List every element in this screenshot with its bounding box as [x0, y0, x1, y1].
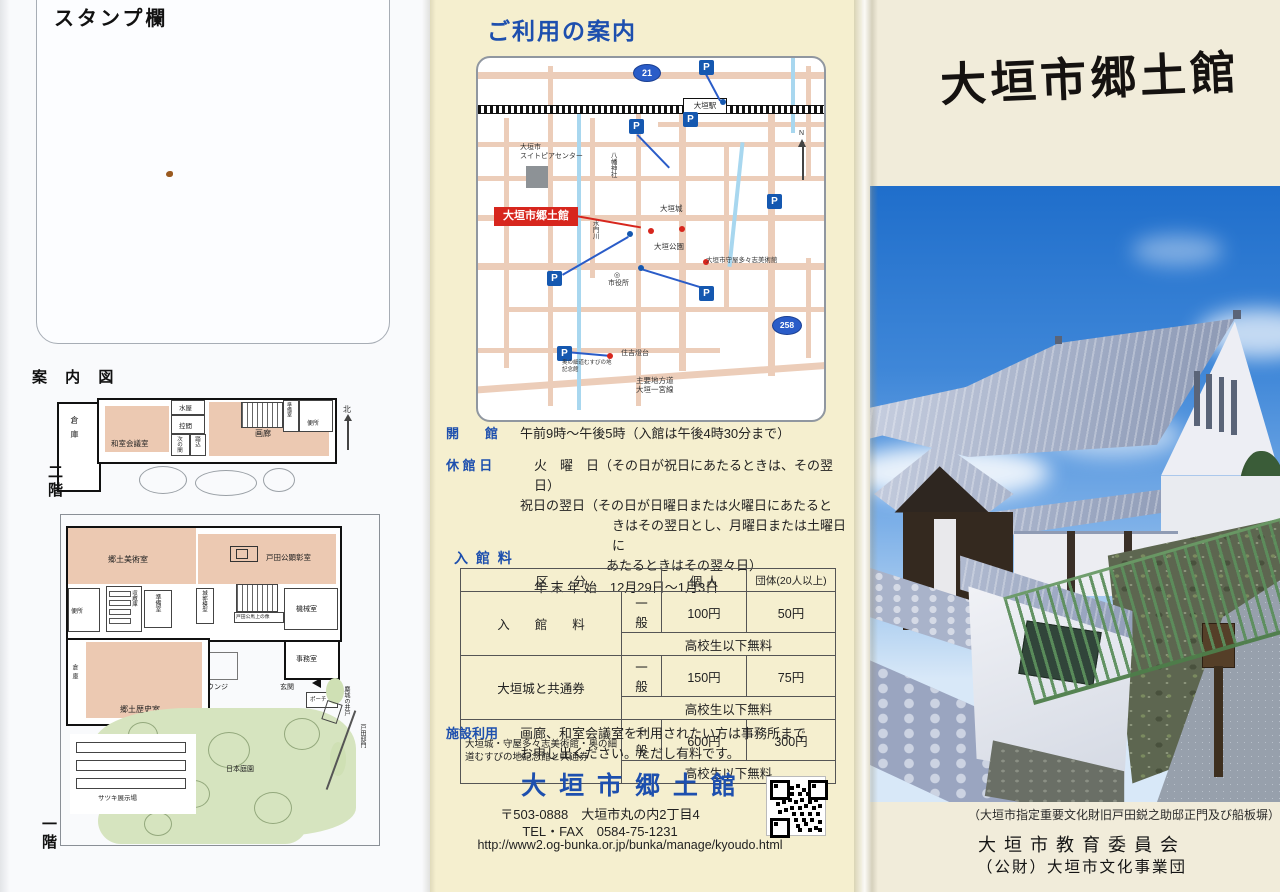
parking-pointer-line — [637, 134, 670, 168]
pref-road-label: 主要地方道 大垣一宮線 — [636, 376, 674, 395]
floorplan-1f: 郷土美術室 戸田公顕彰室 便所 収蔵庫 準備室 城郭模型 戸田公馬上の像 機械室… — [58, 512, 393, 852]
closed-line: きはその翌日とし、月曜日または土曜日に — [520, 516, 852, 556]
north-arrow-icon: N — [796, 130, 810, 182]
floor1-label: 一階 — [38, 816, 59, 852]
guide-map-title: 案 内 図 — [32, 366, 120, 387]
parking-icon: P — [699, 286, 714, 301]
fees-type: 一 般 — [622, 656, 662, 697]
parking-icon: P — [557, 346, 572, 361]
genkan-label: 玄関 — [280, 682, 294, 692]
suimon-label: 水門川 — [590, 220, 598, 240]
map-road — [636, 106, 641, 406]
room-tsuginoma-label: 次の間 — [175, 436, 183, 453]
qr-code — [766, 776, 826, 836]
room-fumikomi-label: 踏込 — [193, 436, 201, 447]
map-road — [548, 66, 553, 406]
okuno-label: 奥の細道むすびの地 記念館 — [562, 360, 612, 374]
map-dot-castle — [679, 226, 685, 232]
open-label: 開 館 — [446, 424, 520, 444]
route-21-badge: 21 — [633, 64, 661, 82]
fees-individual: 100円 — [662, 592, 747, 633]
map-dot — [638, 265, 644, 271]
room-benjo-2f-label: 便所 — [307, 418, 319, 427]
parking-pointer-line — [641, 268, 708, 290]
map-dot-lighthouse — [607, 353, 613, 359]
map-river — [791, 58, 795, 133]
garden-label: 日本庭園 — [226, 764, 254, 774]
panel-stamp-and-floorplans: スタンプ欄 案 内 図 倉庫 和室会議室 水屋 控間 次の間 踏込 画廊 準備室… — [0, 0, 430, 892]
museum-name: 大 垣 市 郷 土 館 — [500, 766, 760, 802]
bijo-well-label: 麋城の井戸 — [342, 686, 351, 716]
room-mizuya-label: 水屋 — [179, 402, 192, 412]
map-road — [679, 106, 686, 371]
shelf — [109, 591, 131, 597]
cloud — [1132, 235, 1222, 266]
castle-label: 大垣城 — [660, 204, 683, 213]
room-kikai-label: 機械室 — [296, 604, 317, 614]
room-gallery-label: 画廊 — [255, 428, 271, 439]
room-kyodo-bijutsu-label: 郷土美術室 — [108, 554, 148, 565]
closed-line: 祝日の翌日（その日が日曜日または火曜日にあたると — [520, 496, 852, 516]
section-title: ご利用の案内 — [487, 12, 637, 46]
garden-sketch-2f — [195, 470, 257, 496]
org-line2: （公財）大垣市文化事業団 — [882, 855, 1280, 877]
facility-line: お申し出ください。ただし有料です。 — [520, 744, 806, 764]
facility-line: 画廊、和室会議室を利用されたい方は事務所まで — [520, 724, 806, 744]
art-museum-label: 大垣市守屋多々志美術館 — [706, 257, 778, 265]
castle-model-label: 城郭模型 — [200, 590, 208, 612]
room-toda-kensho-label: 戸田公顕彰室 — [266, 552, 311, 563]
satsuki-bench — [76, 778, 186, 789]
stamp-box — [36, 0, 390, 344]
map-river — [727, 142, 744, 267]
panel-cover: 大垣市郷土館 — [862, 0, 1280, 892]
suitopia-line2: スイトピアセンター — [520, 153, 583, 162]
fees-col-individual: 個 人 — [662, 569, 747, 592]
garden-sketch-2f — [263, 468, 295, 492]
lighthouse-label: 住吉燈台 — [621, 350, 649, 359]
toda-gate-label: 戸田邸門 — [358, 724, 367, 748]
room-benjo-2f — [299, 400, 333, 432]
map-road — [724, 142, 729, 312]
room-junbi-2f-label: 準備室 — [286, 402, 293, 417]
map-road — [806, 258, 811, 358]
garden-tree — [208, 732, 250, 768]
park-label: 大垣公園 — [654, 242, 684, 251]
fees-col-group: 団体(20人以上) — [747, 569, 836, 592]
fees-type: 一 般 — [622, 592, 662, 633]
fees-row: 入 館 料 一 般 100円 50円 — [461, 592, 836, 633]
floor2-label: 二階 — [44, 464, 65, 500]
paper-speck — [166, 171, 173, 177]
porch-label: ポーチ — [310, 695, 327, 703]
closed-line: 火 曜 日（その日が祝日にあたるときは、その翌日） — [520, 456, 852, 496]
toda-statue-label: 戸田公馬上の像 — [236, 613, 270, 620]
room-junbi-1f-label: 準備室 — [153, 594, 162, 612]
map-dot-kyodokan — [648, 228, 654, 234]
access-map: 大垣駅 21 258 P P P P P P P 大垣市郷土館 大垣市 スイトピ… — [476, 56, 826, 422]
fees-col-category: 区 分 — [461, 569, 662, 592]
stairs-2f — [241, 402, 283, 428]
photo-gable-slit — [1206, 374, 1212, 429]
stairs-1f — [236, 584, 278, 612]
parking-icon: P — [683, 112, 698, 127]
suitopia-square — [526, 166, 548, 188]
pref-road-line1: 主要地方道 — [636, 376, 674, 385]
lounge-furniture — [206, 652, 238, 680]
photo-roof-finial — [1233, 310, 1241, 319]
pref-road-line2: 大垣一宮線 — [636, 385, 674, 394]
map-road — [768, 106, 775, 376]
org-line1: 大垣市教育委員会 — [882, 831, 1280, 857]
facility-label: 施設利用 — [446, 724, 520, 764]
fees-title: 入 館 料 — [454, 548, 514, 568]
entrance-arrow-icon — [312, 678, 321, 688]
photo-gable-slit — [1219, 377, 1225, 432]
suitopia-label: 大垣市 スイトピアセンター — [520, 144, 583, 162]
garden-tree — [284, 718, 320, 750]
photo-sign-post — [1214, 666, 1222, 777]
shelf — [109, 609, 131, 615]
north-arrow-icon-2f: 北 — [341, 404, 355, 454]
suitopia-line1: 大垣市 — [520, 144, 583, 153]
garden-tree — [254, 792, 292, 824]
fees-free: 高校生以下無料 — [622, 697, 836, 720]
qr-finder — [770, 780, 790, 800]
photo-roof-finial — [1055, 336, 1062, 343]
open-text: 午前9時～午後5時（入館は午後4時30分まで） — [520, 424, 790, 444]
shelf — [109, 600, 131, 606]
room-benjo-1f-label: 便所 — [71, 606, 83, 615]
parking-icon: P — [699, 60, 714, 75]
facility-block: 施設利用 画廊、和室会議室を利用されたい方は事務所まで お申し出ください。ただし… — [446, 724, 852, 764]
fees-category: 入 館 料 — [461, 592, 622, 656]
fees-category: 大垣城と共通券 — [461, 656, 622, 720]
city-hall-label: 市役所 — [608, 280, 629, 289]
kyodokan-callout: 大垣市郷土館 — [494, 207, 578, 226]
okuno-line2: 記念館 — [562, 367, 612, 374]
fees-header-row: 区 分 個 人 団体(20人以上) — [461, 569, 836, 592]
open-hours-row: 開 館 午前9時～午後5時（入館は午後4時30分まで） — [446, 424, 852, 444]
museum-photo — [870, 186, 1280, 802]
garden-tree — [144, 812, 172, 836]
map-dot — [720, 99, 726, 105]
parking-icon: P — [547, 271, 562, 286]
qr-finder — [808, 780, 828, 800]
fees-row: 大垣城と共通券 一 般 150円 75円 — [461, 656, 836, 697]
satsuki-bench — [76, 760, 186, 771]
room-shuzoko-label: 収蔵庫 — [130, 590, 138, 607]
route-258-badge: 258 — [772, 316, 802, 335]
display-case-inner — [236, 549, 248, 559]
map-road — [504, 118, 509, 368]
fees-individual: 150円 — [662, 656, 747, 697]
room-hikae-label: 控間 — [179, 420, 192, 430]
fees-group: 75円 — [747, 656, 836, 697]
map-dot — [627, 231, 633, 237]
website-url: http://www2.og-bunka.or.jp/bunka/manage/… — [430, 838, 830, 852]
room-storage-2f-label: 倉庫 — [69, 416, 80, 444]
panel-visitor-info: ご利用の案内 大垣駅 21 258 — [430, 0, 862, 892]
parking-icon: P — [629, 119, 644, 134]
satsuki-bench — [76, 742, 186, 753]
photo-caption: （大垣市指定重要文化財旧戸田鋭之助邸正門及び船板塀） — [968, 806, 1280, 823]
garden-sketch-2f — [139, 466, 187, 494]
satsuki-label: サツキ展示場 — [98, 792, 137, 802]
floorplan-2f: 倉庫 和室会議室 水屋 控間 次の間 踏込 画廊 準備室 便所 北 — [55, 390, 347, 506]
qr-modules — [774, 784, 778, 788]
stamp-box-label: スタンプ欄 — [54, 2, 168, 31]
hachiman-label: 八幡神社 — [608, 152, 616, 178]
room-storage-1f-label: 倉庫 — [70, 664, 79, 682]
room-jimu-label: 事務室 — [296, 654, 317, 664]
photo-gable-slit — [1194, 371, 1200, 426]
fees-free: 高校生以下無料 — [622, 633, 836, 656]
fees-group: 50円 — [747, 592, 836, 633]
map-road — [506, 307, 824, 312]
shelf — [109, 618, 131, 624]
parking-icon: P — [767, 194, 782, 209]
qr-finder — [770, 818, 790, 838]
room-washitsu-label: 和室会議室 — [111, 438, 149, 449]
facility-text: 画廊、和室会議室を利用されたい方は事務所まで お申し出ください。ただし有料です。 — [520, 724, 806, 764]
photo-gable-slit — [1231, 380, 1237, 435]
okuno-line1: 奥の細道むすびの地 — [562, 360, 612, 367]
brochure-title: 大垣市郷土館 — [939, 35, 1272, 115]
railway-line — [478, 105, 824, 114]
